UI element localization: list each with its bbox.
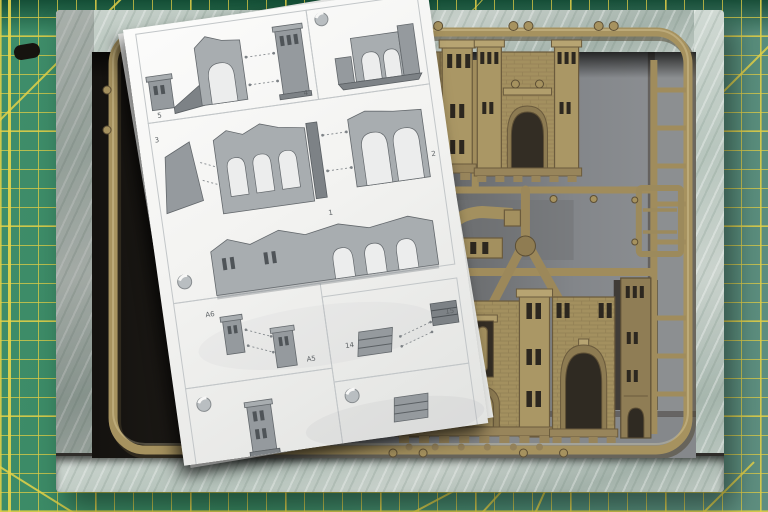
part-label: A6: [205, 310, 216, 319]
instruction-sheet: 5 4: [123, 0, 488, 466]
part-label: 15: [445, 307, 455, 316]
glue-sphere-icon: [344, 388, 360, 404]
panel-assembled-ruin: [314, 0, 423, 92]
part-label: 14: [345, 341, 355, 350]
gothic-arch-piece: [550, 297, 618, 443]
assembled-wall: [209, 209, 439, 300]
part-label: 2: [431, 150, 437, 159]
box-wall-right: [694, 10, 724, 492]
panel-single-tower: [196, 388, 280, 464]
tower-piece: [621, 278, 651, 438]
part-label: 1: [328, 209, 334, 218]
box-wall-left: [56, 10, 94, 492]
photo-stage: 5 4: [0, 0, 768, 512]
glue-sphere-icon: [314, 12, 329, 27]
part-label: 5: [157, 111, 163, 120]
panel-step-arch: 5 4: [141, 23, 312, 121]
box-wall-bottom: [56, 453, 724, 492]
gothic-wall-piece: [474, 40, 581, 182]
glue-sphere-icon: [196, 396, 212, 412]
mat-edge-line: [8, 0, 11, 512]
glue-sphere-icon: [177, 274, 193, 290]
panel-wall-assembly: 3 1 2: [154, 98, 451, 305]
mat-black-mark: [13, 42, 41, 61]
part-label: 3: [154, 136, 160, 145]
part-label: A5: [306, 354, 316, 363]
instruction-diagrams: 5 4: [123, 0, 488, 466]
